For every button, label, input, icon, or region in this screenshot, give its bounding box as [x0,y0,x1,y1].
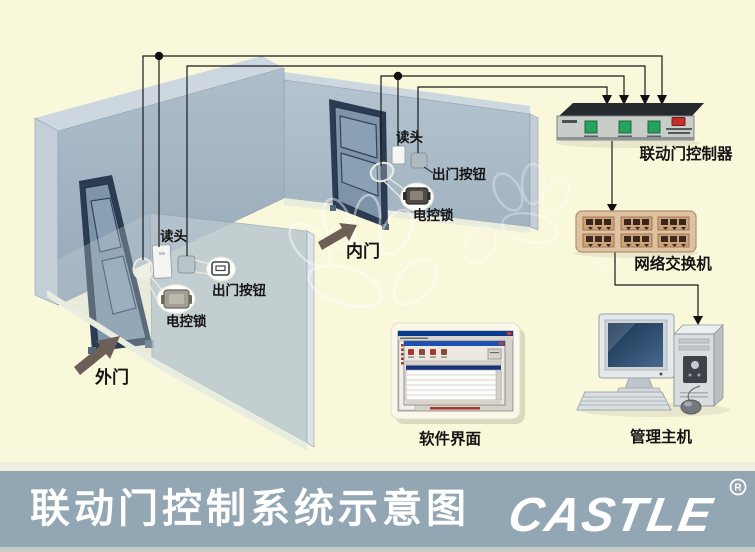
inner-lock-label: 电控锁 [413,207,454,223]
door-controller [556,103,704,148]
inner-door-foot-left [330,205,336,211]
bar-top-strip [0,462,755,471]
outer-exit-button-device [178,256,195,273]
controller-button-3 [648,121,660,133]
controller-label: 联动门控制器 [639,144,733,163]
tower-drive-bay [679,339,709,343]
mouse [681,400,701,414]
network-switch [574,211,698,258]
monitor-stand [625,378,653,389]
inner-reader-device [392,146,405,164]
outer-reader-device [152,245,172,279]
exit-button-icon [212,262,229,275]
switch-label: 网络交换机 [634,254,712,273]
tower-led [689,374,692,377]
brand-logo-text: CASTLE [504,488,717,542]
bar-bottom-strip [0,547,755,552]
tower-vent [680,396,708,398]
diagram-title: 联动门控制系统示意图 [30,487,470,531]
app-menu-items [400,338,428,340]
interlock-door-system-diagram: 读头 出门按钮 电控锁 读头 出门按钮 电控锁 外门 内门 联动门控制器 网络交… [0,0,755,552]
list-column-headers [406,361,501,365]
dialog-close-button [499,342,504,345]
controller-button-caption [584,136,598,138]
controller-top-face [559,103,704,116]
app-title-bar [398,331,513,336]
inner-reader-label: 读头 [396,129,423,145]
controller-brand-mark [562,120,577,123]
outer-exit-button-label: 出门按钮 [212,282,266,298]
software-interface-card [391,323,525,424]
diagram-canvas: 读头 出门按钮 电控锁 读头 出门按钮 电控锁 外门 内门 联动门控制器 网络交… [0,0,755,552]
outer-reader-label: 读头 [160,228,187,244]
monitor-power-dot [660,373,663,376]
controller-bottom-edge [557,137,694,140]
controller-button-2 [619,121,631,133]
outer-lock-label: 电控锁 [166,313,207,329]
outer-lock-icon-face [169,294,184,304]
software-label: 软件界面 [419,429,481,448]
right-wall-end-strip [530,114,538,230]
app-status-text [430,407,480,410]
outer-door-label: 外门 [95,367,129,387]
controller-button-caption [647,136,661,138]
tower-drive-bay [679,346,709,350]
controller-model-text [666,128,692,130]
dialog-side-button [488,349,501,359]
tower-power-button [691,361,699,369]
inner-lock-icon-face [410,191,423,200]
registered-mark-letter: R [734,483,742,494]
brand-logo: CASTLE [504,488,717,542]
controller-model-text [668,132,690,134]
inner-exit-button-device [411,153,427,168]
list-scrollbar [496,370,501,400]
dialog-side-button-text [490,352,499,353]
controller-power-led [672,118,685,126]
tower-side [714,325,723,406]
tower-led [698,374,701,377]
mouse-highlight [684,402,692,407]
dialog-title-bar [404,341,505,346]
management-host [577,314,730,417]
dialog-status-bar [406,400,501,404]
inner-door-label: 内门 [346,241,380,261]
inner-exit-button-label: 出门按钮 [432,166,486,182]
bottom-title-bar: 联动门控制系统示意图 CASTLE R [0,462,755,552]
tower-front-panel [683,356,707,383]
outer-reader-slot [159,252,165,255]
wire-junction-dot [155,52,163,60]
host-label: 管理主机 [630,427,693,446]
app-close-button [507,332,512,335]
controller-button-caption [618,136,632,138]
wire-junction-dot [394,72,402,80]
list-selected-band [406,366,501,371]
controller-button-1 [585,121,597,133]
tower-vent [680,392,708,394]
